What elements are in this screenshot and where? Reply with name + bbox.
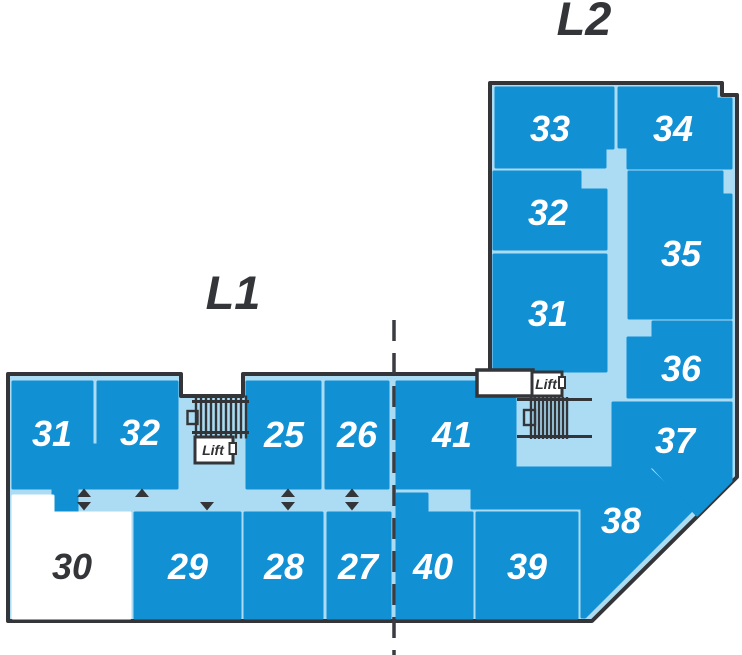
level-title-l1: L1 — [206, 266, 261, 319]
room-40-l2[interactable] — [397, 494, 472, 618]
room-31-l2[interactable] — [494, 255, 606, 371]
room-39-l2[interactable] — [477, 513, 577, 618]
floorplan-canvas: 33 34 32 31 35 36 37 41 40 39 38 Lift — [0, 0, 742, 655]
room-27-l1[interactable] — [328, 513, 390, 618]
room-26-l1[interactable] — [326, 382, 388, 488]
room-29-l1[interactable] — [135, 513, 240, 618]
lift-label: Lift — [202, 442, 225, 458]
room-30-l1[interactable] — [13, 496, 130, 618]
room-28-l1[interactable] — [245, 513, 322, 618]
level-title-l2: L2 — [557, 0, 612, 45]
room-32-l1[interactable] — [95, 382, 177, 488]
void-box — [477, 370, 533, 396]
room-33-l2[interactable] — [496, 88, 613, 167]
level-l2: 33 34 32 31 35 36 37 41 40 39 38 Lift — [397, 88, 731, 618]
room-35-l2[interactable] — [629, 172, 731, 318]
floorplan-svg: 33 34 32 31 35 36 37 41 40 39 38 Lift — [0, 0, 742, 655]
lift-box-l1: Lift — [195, 437, 236, 463]
lift-label: Lift — [535, 376, 558, 392]
room-25-l1[interactable] — [247, 382, 320, 488]
lift-box-l2: Lift — [532, 372, 565, 396]
room-34-l2[interactable] — [619, 88, 731, 168]
